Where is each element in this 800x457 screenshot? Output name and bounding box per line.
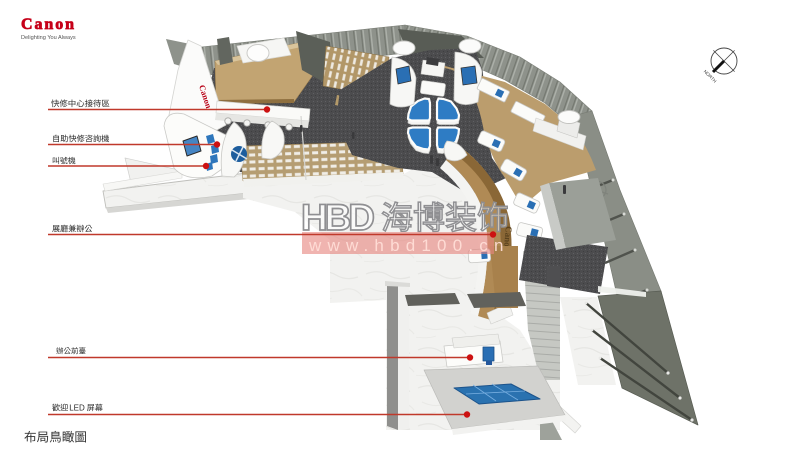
svg-text:Delighting You Always: Delighting You Always xyxy=(21,35,76,41)
svg-text:www.hbd100.cn: www.hbd100.cn xyxy=(308,236,510,255)
svg-text:HBD: HBD xyxy=(301,197,375,238)
svg-text:LED: LED xyxy=(69,404,85,413)
svg-text:Canon: Canon xyxy=(21,16,74,33)
